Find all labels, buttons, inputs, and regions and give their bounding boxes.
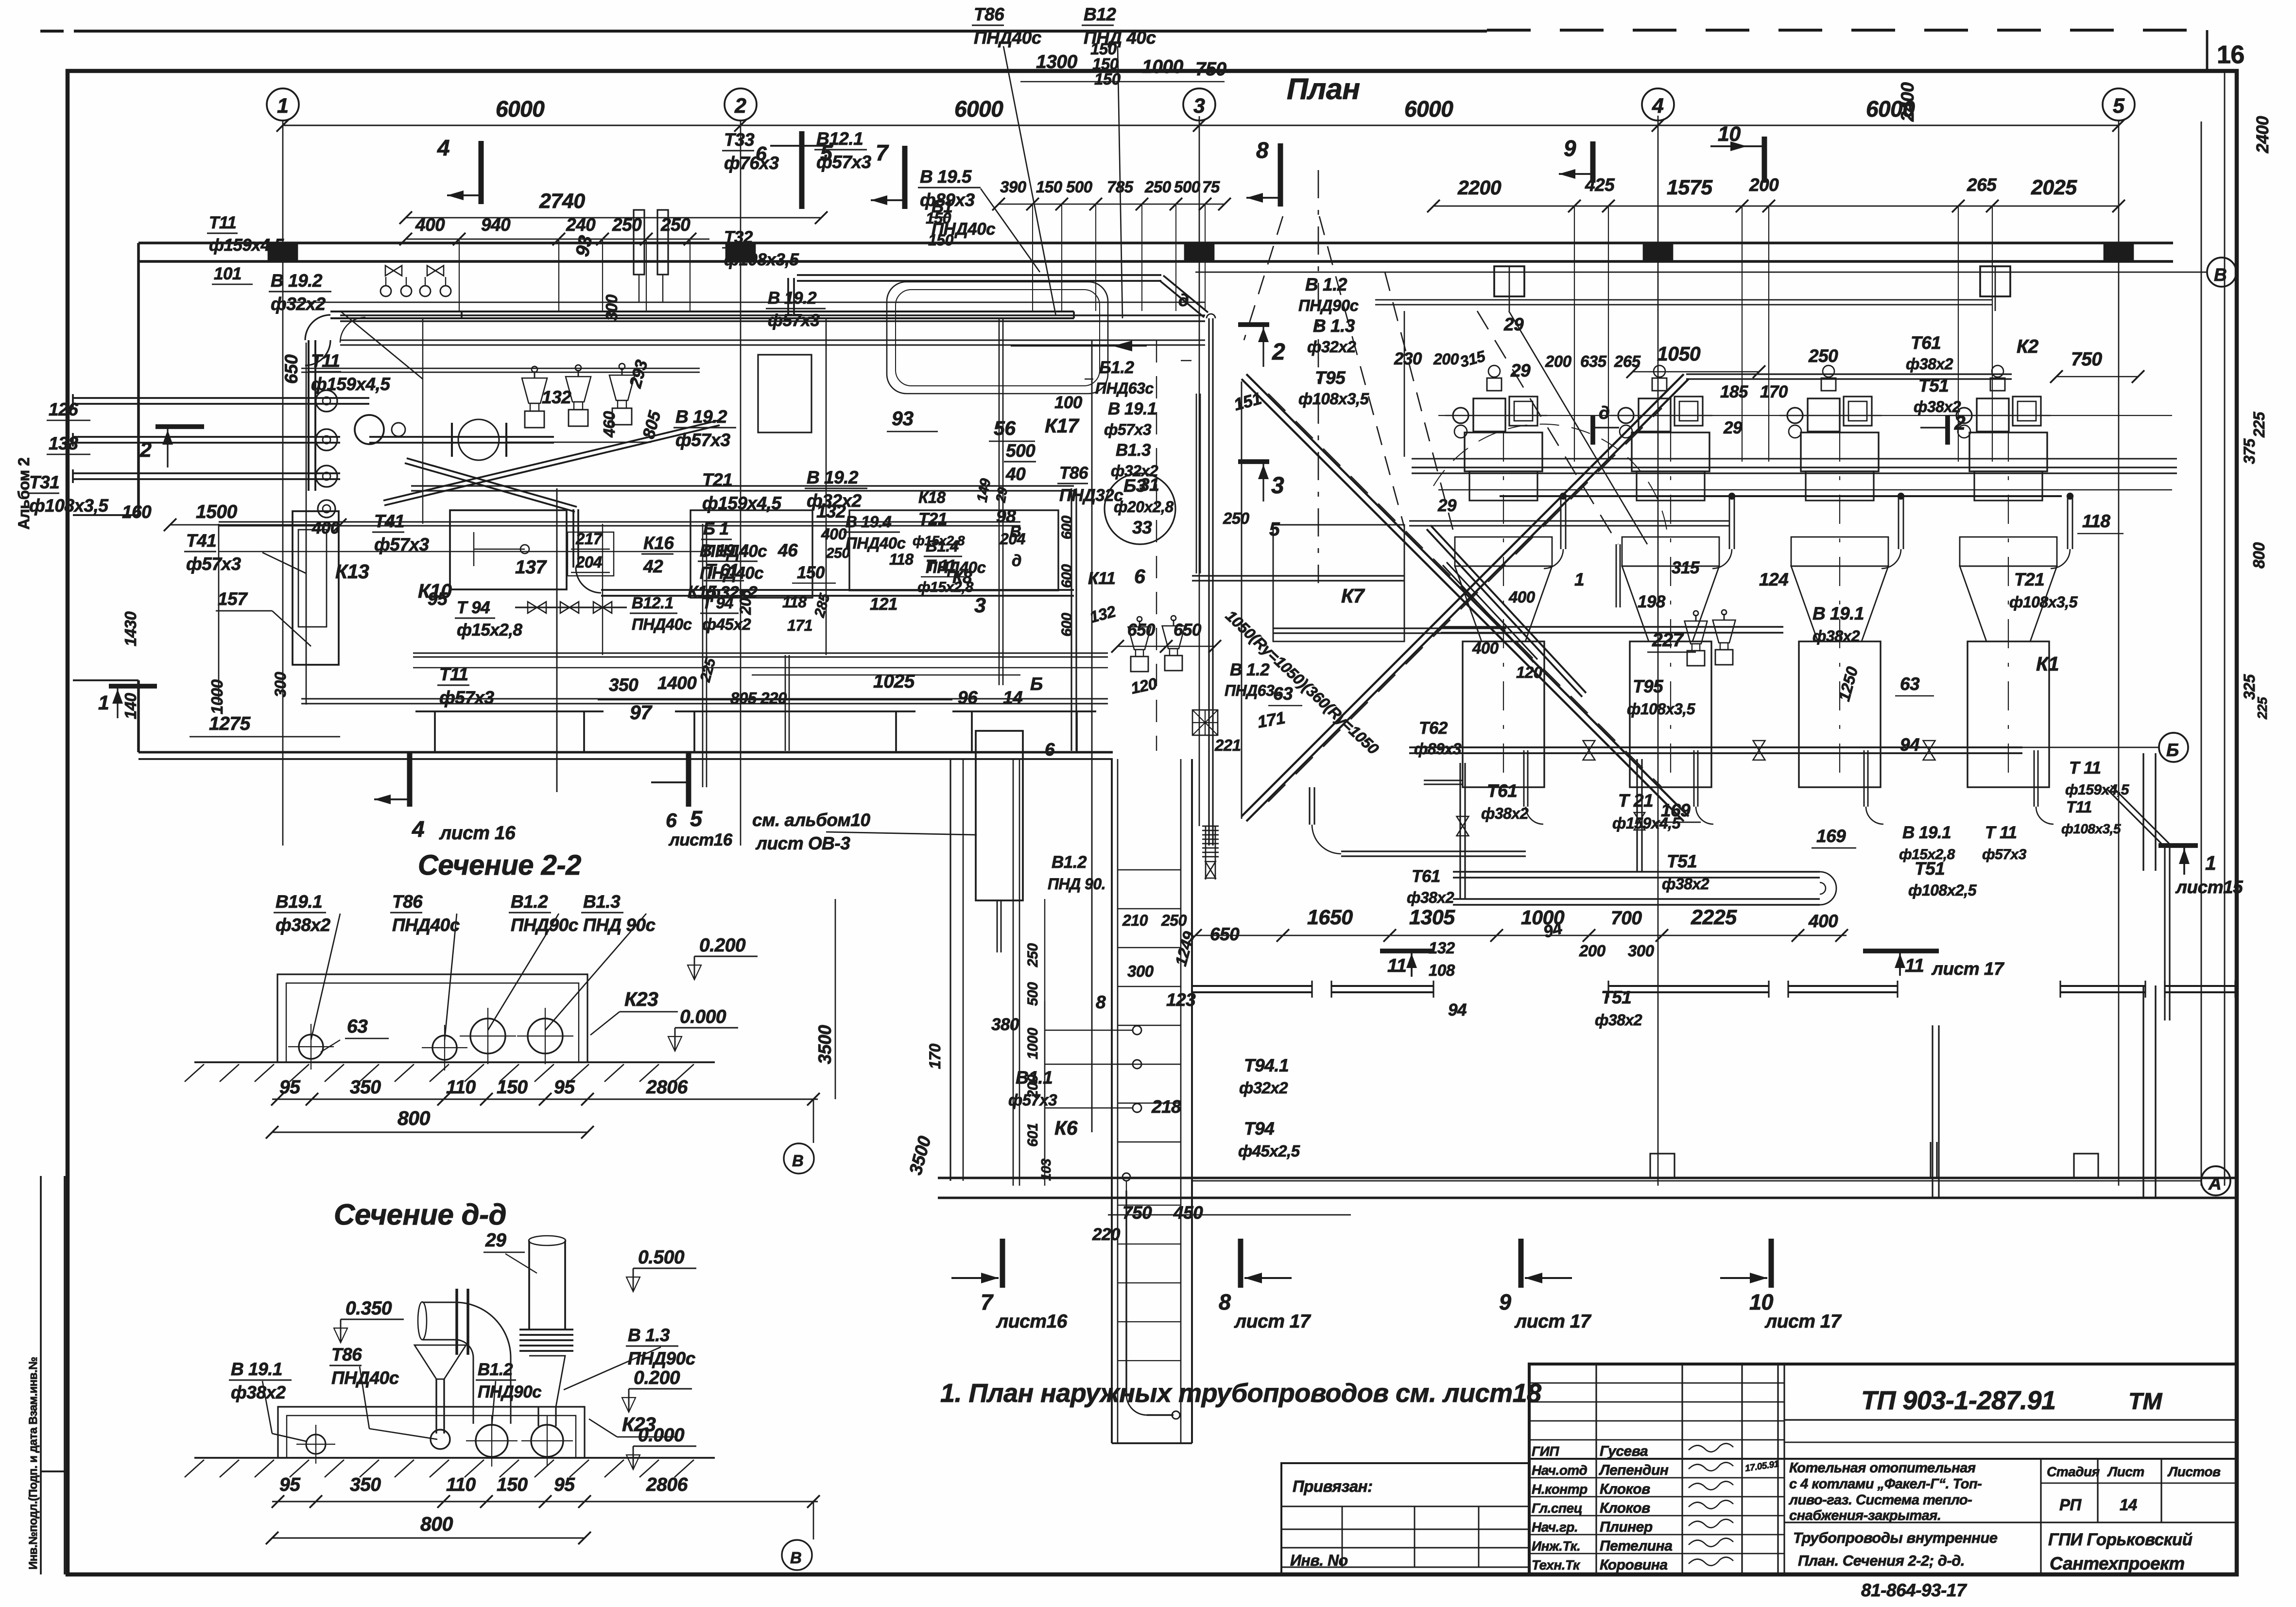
svg-text:ф108х2,5: ф108х2,5: [1908, 881, 1977, 899]
svg-text:Лист: Лист: [2107, 1464, 2144, 1479]
svg-text:Гусева: Гусева: [1600, 1443, 1648, 1459]
svg-text:В: В: [792, 1152, 803, 1170]
svg-text:В 1.3: В 1.3: [628, 1325, 670, 1345]
svg-text:снабжения-закрытая.: снабжения-закрытая.: [1789, 1508, 1941, 1523]
svg-text:Т21: Т21: [2014, 570, 2044, 589]
svg-text:1500: 1500: [196, 501, 238, 522]
svg-text:д: д: [1012, 552, 1021, 570]
svg-text:7: 7: [876, 140, 889, 165]
svg-text:В 19.1: В 19.1: [1108, 399, 1157, 418]
svg-text:250: 250: [1144, 178, 1172, 196]
svg-text:350: 350: [350, 1474, 381, 1495]
svg-text:Т61: Т61: [1487, 781, 1517, 801]
svg-text:93: 93: [892, 407, 914, 430]
svg-text:500: 500: [1025, 982, 1041, 1006]
svg-text:Коровина: Коровина: [1600, 1557, 1668, 1573]
svg-text:300: 300: [1127, 962, 1154, 980]
svg-text:108: 108: [1429, 961, 1455, 979]
svg-text:ф57х3: ф57х3: [675, 430, 730, 450]
svg-text:225: 225: [2250, 411, 2268, 438]
svg-text:ф57х3: ф57х3: [186, 554, 241, 574]
svg-text:800: 800: [397, 1107, 431, 1129]
svg-text:8: 8: [1219, 1290, 1231, 1314]
svg-text:ф38х2: ф38х2: [1906, 355, 1953, 373]
svg-text:В1.2: В1.2: [478, 1360, 513, 1379]
svg-text:750: 750: [1122, 1203, 1152, 1223]
svg-text:29: 29: [1503, 314, 1524, 334]
svg-text:В 19.4: В 19.4: [846, 513, 891, 531]
svg-text:600: 600: [1059, 564, 1075, 588]
svg-text:К13: К13: [335, 560, 369, 583]
svg-text:220: 220: [1092, 1225, 1121, 1244]
svg-text:40: 40: [1005, 464, 1026, 484]
svg-text:700: 700: [1611, 908, 1642, 929]
svg-text:ТМ: ТМ: [2128, 1389, 2162, 1415]
svg-text:1400: 1400: [657, 673, 697, 693]
svg-text:29: 29: [1437, 496, 1457, 515]
svg-text:ф38х2: ф38х2: [276, 915, 330, 935]
svg-text:2: 2: [1272, 339, 1285, 365]
svg-text:В 1.3: В 1.3: [1313, 316, 1355, 336]
svg-text:ф57х3: ф57х3: [374, 535, 429, 554]
svg-text:ПНД90с: ПНД90с: [628, 1348, 696, 1368]
svg-text:лист16: лист16: [668, 830, 733, 849]
svg-text:Инв. No: Инв. No: [1290, 1552, 1348, 1569]
svg-text:2: 2: [139, 438, 152, 462]
svg-text:42: 42: [643, 556, 663, 576]
svg-text:Т86: Т86: [1059, 464, 1088, 483]
svg-text:11: 11: [1905, 955, 1924, 976]
svg-text:250: 250: [1808, 346, 1838, 366]
svg-text:Листов: Листов: [2167, 1464, 2221, 1479]
svg-text:К16: К16: [643, 533, 674, 553]
svg-text:1050: 1050: [1657, 343, 1701, 365]
svg-text:137: 137: [515, 557, 547, 578]
svg-text:Техн.Тк: Техн.Тк: [1532, 1557, 1581, 1572]
svg-text:В 1.2: В 1.2: [1305, 275, 1347, 294]
svg-text:185: 185: [1720, 382, 1748, 401]
svg-text:1: 1: [98, 691, 109, 714]
svg-text:Котельная отопительная: Котельная отопительная: [1789, 1460, 1976, 1476]
svg-text:В19.1: В19.1: [276, 892, 322, 912]
svg-text:315: 315: [1672, 558, 1700, 577]
svg-text:2: 2: [1954, 412, 1966, 434]
svg-text:ПНД40с: ПНД40с: [392, 915, 460, 935]
svg-text:350: 350: [609, 675, 639, 695]
svg-text:29: 29: [1723, 418, 1743, 437]
svg-text:План. Сечения 2-2; д-д.: План. Сечения 2-2; д-д.: [1798, 1552, 1965, 1569]
svg-text:Т51: Т51: [1918, 376, 1949, 396]
svg-text:Т 11: Т 11: [926, 556, 956, 574]
svg-text:Стадия: Стадия: [2047, 1464, 2100, 1479]
svg-text:см. альбом10: см. альбом10: [752, 810, 870, 830]
svg-text:14: 14: [1003, 688, 1022, 708]
svg-text:К10: К10: [418, 580, 452, 602]
svg-text:300: 300: [1628, 942, 1655, 960]
svg-text:250: 250: [612, 215, 642, 235]
svg-text:650: 650: [1210, 924, 1240, 944]
svg-text:лист 17: лист 17: [1764, 1311, 1842, 1332]
svg-text:5: 5: [2113, 94, 2125, 118]
svg-text:К11: К11: [1088, 569, 1115, 588]
svg-text:11: 11: [1387, 955, 1407, 976]
svg-text:2225: 2225: [1691, 906, 1737, 929]
svg-text:Б3: Б3: [1123, 476, 1146, 496]
svg-text:650: 650: [281, 354, 301, 384]
svg-text:16: 16: [2217, 41, 2244, 69]
svg-text:800: 800: [420, 1513, 453, 1535]
svg-text:5: 5: [690, 806, 703, 831]
svg-text:Т41: Т41: [374, 511, 404, 531]
svg-text:ПНД90с: ПНД90с: [1298, 296, 1359, 314]
svg-text:4: 4: [412, 816, 424, 842]
svg-text:95: 95: [554, 1474, 575, 1495]
svg-text:Т86: Т86: [974, 4, 1004, 24]
svg-text:ф108х3,5: ф108х3,5: [2061, 821, 2121, 836]
svg-text:К18: К18: [918, 488, 946, 506]
svg-text:198: 198: [1638, 592, 1666, 611]
svg-text:425: 425: [1585, 175, 1615, 195]
svg-text:Инв.№подл.(Подп. и дата Взам.и: Инв.№подл.(Подп. и дата Взам.инв.№: [27, 1357, 40, 1570]
svg-text:Б1: Б1: [932, 197, 952, 216]
svg-text:150: 150: [497, 1474, 528, 1495]
svg-text:460: 460: [600, 411, 618, 438]
svg-text:81-864-93-17: 81-864-93-17: [1861, 1580, 1968, 1600]
svg-text:601: 601: [1025, 1123, 1041, 1147]
svg-text:2806: 2806: [646, 1474, 688, 1495]
svg-text:ф38х2: ф38х2: [1481, 805, 1529, 822]
svg-text:лист 17: лист 17: [1931, 959, 2005, 979]
svg-text:200: 200: [1025, 1074, 1041, 1099]
svg-text:5: 5: [820, 140, 833, 165]
svg-text:3: 3: [974, 594, 986, 617]
svg-text:Сечение 2-2: Сечение 2-2: [418, 849, 581, 881]
svg-text:6: 6: [1045, 740, 1055, 760]
svg-text:с 4 котлами „Факел-Г“. Топ-: с 4 котлами „Факел-Г“. Топ-: [1789, 1476, 1982, 1492]
svg-text:200: 200: [1545, 352, 1572, 370]
svg-text:9: 9: [1499, 1290, 1511, 1314]
svg-text:94: 94: [1900, 735, 1919, 755]
svg-text:ф159х4,5: ф159х4,5: [311, 374, 391, 394]
svg-text:Т33: Т33: [724, 130, 755, 150]
svg-text:110: 110: [446, 1474, 476, 1495]
svg-text:ф159х4,5: ф159х4,5: [2065, 782, 2130, 798]
svg-text:ф32х2: ф32х2: [1239, 1079, 1288, 1097]
svg-text:Т11: Т11: [439, 664, 468, 684]
svg-text:ПНД 40с: ПНД 40с: [1084, 28, 1156, 48]
svg-text:К7: К7: [1341, 585, 1365, 607]
svg-text:ф20х2,8: ф20х2,8: [1114, 498, 1174, 516]
svg-text:ПНД40с: ПНД40с: [932, 220, 995, 239]
svg-text:Б 1: Б 1: [703, 519, 728, 538]
svg-text:1: 1: [1574, 570, 1584, 589]
svg-text:В12: В12: [1084, 4, 1116, 24]
svg-text:Б: Б: [2166, 740, 2179, 760]
svg-text:29: 29: [993, 486, 1010, 504]
svg-text:4: 4: [437, 135, 449, 160]
svg-text:ф159х4,5: ф159х4,5: [209, 236, 284, 255]
svg-text:Т 94: Т 94: [457, 598, 490, 617]
svg-text:126: 126: [49, 399, 78, 419]
svg-text:Т95: Т95: [1633, 676, 1664, 696]
svg-text:46: 46: [777, 540, 798, 560]
svg-text:8: 8: [1256, 138, 1269, 163]
svg-text:Т21: Т21: [702, 470, 732, 490]
svg-text:ПНД40с: ПНД40с: [846, 534, 906, 552]
svg-text:118: 118: [782, 593, 807, 611]
svg-text:375: 375: [2241, 438, 2258, 464]
svg-text:63: 63: [347, 1016, 368, 1037]
svg-text:Петелина: Петелина: [1600, 1538, 1672, 1554]
svg-text:В1.3: В1.3: [1116, 441, 1151, 460]
svg-text:ф15х2,8: ф15х2,8: [457, 621, 523, 639]
svg-text:96: 96: [958, 688, 978, 708]
svg-text:2400: 2400: [2253, 116, 2272, 154]
svg-text:ливо-газ. Система тепло-: ливо-газ. Система тепло-: [1788, 1492, 1972, 1508]
svg-text:805 220: 805 220: [730, 689, 787, 707]
svg-text:Лепендин: Лепендин: [1599, 1462, 1669, 1478]
svg-text:ф108х3,5: ф108х3,5: [1298, 390, 1369, 408]
svg-text:ф45х2: ф45х2: [702, 615, 751, 633]
svg-text:ф15х2,8: ф15х2,8: [913, 533, 965, 548]
svg-text:350: 350: [350, 1077, 381, 1098]
svg-text:ТП 903-1-287.91: ТП 903-1-287.91: [1861, 1386, 2056, 1415]
svg-text:Т 21: Т 21: [1618, 791, 1653, 811]
svg-text:В 19.2: В 19.2: [768, 289, 817, 308]
svg-text:лист 17: лист 17: [1514, 1311, 1592, 1332]
svg-text:В 19.2: В 19.2: [271, 271, 323, 291]
svg-text:Т51: Т51: [1601, 987, 1631, 1007]
svg-text:390: 390: [1000, 178, 1027, 196]
svg-text:Инж.Тк.: Инж.Тк.: [1532, 1538, 1580, 1554]
svg-text:200: 200: [1433, 350, 1459, 368]
svg-text:500: 500: [1066, 178, 1093, 196]
svg-text:ф57х3: ф57х3: [439, 688, 494, 708]
svg-text:ПНД40с: ПНД40с: [700, 564, 763, 583]
svg-text:Т21: Т21: [918, 510, 947, 529]
svg-text:ф38х2: ф38х2: [1595, 1011, 1642, 1029]
svg-text:138: 138: [49, 433, 78, 453]
svg-text:В 1.2: В 1.2: [1230, 660, 1270, 679]
svg-text:120: 120: [1516, 663, 1543, 681]
svg-text:101: 101: [214, 264, 242, 283]
svg-text:171: 171: [787, 617, 812, 634]
svg-text:Т62: Т62: [1419, 719, 1448, 738]
svg-text:Т86: Т86: [392, 892, 423, 912]
svg-text:Б1.2: Б1.2: [1099, 358, 1134, 377]
svg-text:132: 132: [816, 501, 846, 521]
svg-text:3: 3: [1271, 473, 1284, 499]
svg-text:Нач.гр.: Нач.гр.: [1532, 1520, 1578, 1535]
svg-text:ПНД90с: ПНД90с: [511, 915, 579, 935]
svg-text:В 19.4: В 19.4: [700, 541, 748, 560]
svg-text:Т41: Т41: [186, 531, 216, 551]
svg-text:В12.1: В12.1: [632, 594, 673, 612]
svg-text:лист15: лист15: [2175, 877, 2244, 897]
svg-text:500: 500: [1006, 441, 1036, 461]
svg-text:6: 6: [756, 142, 767, 165]
svg-text:В 19.2: В 19.2: [675, 407, 727, 427]
svg-text:600: 600: [1059, 613, 1075, 637]
svg-text:75: 75: [1202, 178, 1220, 196]
svg-text:325: 325: [2241, 674, 2258, 700]
svg-text:500: 500: [1174, 178, 1201, 196]
svg-text:ф89х3: ф89х3: [1414, 740, 1462, 758]
svg-text:Т94.1: Т94.1: [1244, 1055, 1289, 1075]
svg-text:ф38х2: ф38х2: [1813, 627, 1860, 645]
svg-text:118: 118: [2082, 511, 2110, 531]
svg-text:В1.2: В1.2: [1052, 853, 1087, 872]
svg-text:63: 63: [1900, 674, 1920, 694]
svg-text:200: 200: [1579, 942, 1606, 960]
svg-text:1000: 1000: [1025, 1027, 1041, 1059]
svg-text:Нач.отд: Нач.отд: [1532, 1463, 1587, 1478]
svg-text:94: 94: [1448, 1001, 1467, 1019]
svg-text:100: 100: [1054, 393, 1083, 412]
svg-text:К15: К15: [688, 583, 717, 602]
svg-text:225: 225: [2255, 697, 2270, 720]
svg-text:В 19.1: В 19.1: [1902, 823, 1951, 842]
svg-text:1. План наружных трубопроводов: 1. План наружных трубопроводов см. лист1…: [940, 1379, 1541, 1408]
svg-text:450: 450: [1173, 1203, 1203, 1223]
svg-text:2200: 2200: [1457, 176, 1502, 199]
svg-text:0.200: 0.200: [699, 935, 746, 956]
svg-text:6000: 6000: [1404, 96, 1453, 121]
svg-text:В1.2: В1.2: [511, 892, 548, 912]
svg-text:785: 785: [1107, 178, 1134, 196]
svg-text:300: 300: [603, 294, 621, 321]
svg-text:лист16: лист16: [996, 1311, 1068, 1332]
svg-text:1: 1: [2205, 852, 2216, 874]
svg-text:ф108х3,5: ф108х3,5: [2009, 593, 2078, 611]
svg-text:8: 8: [1096, 992, 1106, 1012]
svg-text:К2: К2: [2017, 336, 2038, 357]
svg-text:2400: 2400: [1898, 82, 1917, 122]
svg-text:К1: К1: [2036, 653, 2059, 675]
svg-text:1: 1: [277, 94, 288, 118]
svg-text:ф57х3: ф57х3: [1104, 421, 1152, 438]
svg-text:2025: 2025: [2031, 176, 2077, 199]
svg-text:ф32х2: ф32х2: [1307, 338, 1356, 356]
svg-text:227: 227: [1652, 630, 1684, 651]
svg-text:ф76х3: ф76х3: [724, 153, 779, 173]
svg-text:300: 300: [272, 672, 289, 697]
svg-text:ф32х2: ф32х2: [271, 294, 326, 314]
svg-text:В: В: [1010, 522, 1021, 540]
svg-text:Т 11: Т 11: [1985, 823, 2017, 842]
svg-text:110: 110: [446, 1077, 476, 1098]
svg-text:124: 124: [1759, 570, 1788, 589]
svg-text:6: 6: [1134, 565, 1146, 588]
svg-text:650: 650: [1174, 621, 1202, 639]
svg-text:1650: 1650: [1307, 906, 1353, 929]
svg-text:Н.контр: Н.контр: [1532, 1482, 1588, 1497]
svg-text:Т11: Т11: [209, 213, 236, 232]
svg-text:Т94: Т94: [1244, 1119, 1274, 1139]
svg-text:К6: К6: [1054, 1117, 1078, 1139]
svg-text:97: 97: [630, 701, 653, 724]
svg-text:1300: 1300: [1036, 52, 1078, 72]
svg-text:Привязан:: Привязан:: [1293, 1477, 1373, 1495]
svg-text:ф108х3,5: ф108х3,5: [29, 496, 109, 516]
svg-text:К17: К17: [1045, 415, 1080, 437]
svg-text:ф38х2: ф38х2: [1662, 875, 1709, 893]
svg-text:Плинер: Плинер: [1600, 1519, 1653, 1535]
svg-text:ПНД63с: ПНД63с: [1225, 682, 1283, 699]
svg-text:121: 121: [870, 595, 898, 614]
svg-text:0.000: 0.000: [638, 1425, 685, 1446]
svg-text:200: 200: [737, 589, 754, 615]
svg-text:Гл.спец: Гл.спец: [1532, 1501, 1582, 1516]
svg-text:лист ОВ-3: лист ОВ-3: [755, 833, 850, 853]
svg-text:ф108х3,5: ф108х3,5: [1627, 700, 1696, 718]
svg-text:1305: 1305: [1409, 906, 1455, 929]
svg-text:В1.3: В1.3: [583, 892, 621, 912]
svg-text:750: 750: [1195, 59, 1226, 80]
svg-text:103: 103: [1038, 1158, 1053, 1181]
svg-text:29: 29: [1510, 361, 1531, 380]
svg-text:218: 218: [1151, 1097, 1181, 1117]
svg-text:лист 17: лист 17: [1234, 1311, 1312, 1332]
svg-text:Т 11: Т 11: [2069, 759, 2101, 778]
svg-text:940: 940: [481, 215, 511, 235]
svg-text:А: А: [2208, 1174, 2221, 1193]
svg-text:Т61: Т61: [1412, 867, 1440, 886]
svg-text:221: 221: [1214, 736, 1241, 754]
svg-text:Т11: Т11: [2066, 798, 2092, 816]
svg-text:400: 400: [821, 525, 847, 543]
svg-text:0.200: 0.200: [634, 1367, 680, 1388]
svg-text:400: 400: [415, 215, 445, 235]
svg-text:6000: 6000: [954, 96, 1003, 121]
svg-text:95: 95: [279, 1474, 301, 1495]
svg-text:150: 150: [497, 1077, 528, 1098]
svg-text:250: 250: [1161, 912, 1187, 929]
svg-text:400: 400: [311, 518, 340, 537]
svg-text:33: 33: [1132, 518, 1152, 537]
svg-text:132: 132: [1429, 939, 1455, 957]
svg-text:лист 16: лист 16: [439, 823, 516, 844]
svg-text:Т31: Т31: [29, 472, 59, 492]
svg-text:250: 250: [826, 545, 850, 561]
svg-text:2740: 2740: [539, 190, 585, 213]
svg-text:Трубопроводы внутренние: Трубопроводы внутренние: [1793, 1529, 1998, 1546]
svg-text:170: 170: [926, 1043, 944, 1069]
svg-text:1430: 1430: [121, 611, 139, 646]
svg-text:Т51: Т51: [1667, 851, 1697, 871]
svg-text:210: 210: [1122, 912, 1148, 929]
svg-text:ПНД63с: ПНД63с: [1095, 380, 1154, 397]
svg-text:204: 204: [575, 553, 602, 571]
svg-text:800: 800: [2250, 542, 2268, 569]
svg-text:В 19.2: В 19.2: [807, 467, 859, 487]
svg-text:4: 4: [1652, 94, 1664, 118]
svg-text:ПНД40с: ПНД40с: [974, 28, 1042, 48]
svg-text:ПНД40с: ПНД40с: [632, 615, 692, 633]
svg-text:400: 400: [1808, 911, 1838, 931]
svg-text:Б: Б: [1030, 674, 1043, 694]
svg-text:3500: 3500: [815, 1025, 835, 1064]
svg-text:123: 123: [1166, 990, 1196, 1010]
svg-text:157: 157: [218, 589, 248, 609]
svg-text:6: 6: [666, 809, 677, 831]
svg-text:6000: 6000: [496, 96, 545, 121]
svg-text:РП: РП: [2059, 1496, 2082, 1514]
svg-text:2: 2: [734, 94, 746, 118]
svg-text:56: 56: [994, 417, 1016, 439]
svg-text:170: 170: [1760, 382, 1788, 401]
svg-text:В: В: [790, 1549, 801, 1567]
